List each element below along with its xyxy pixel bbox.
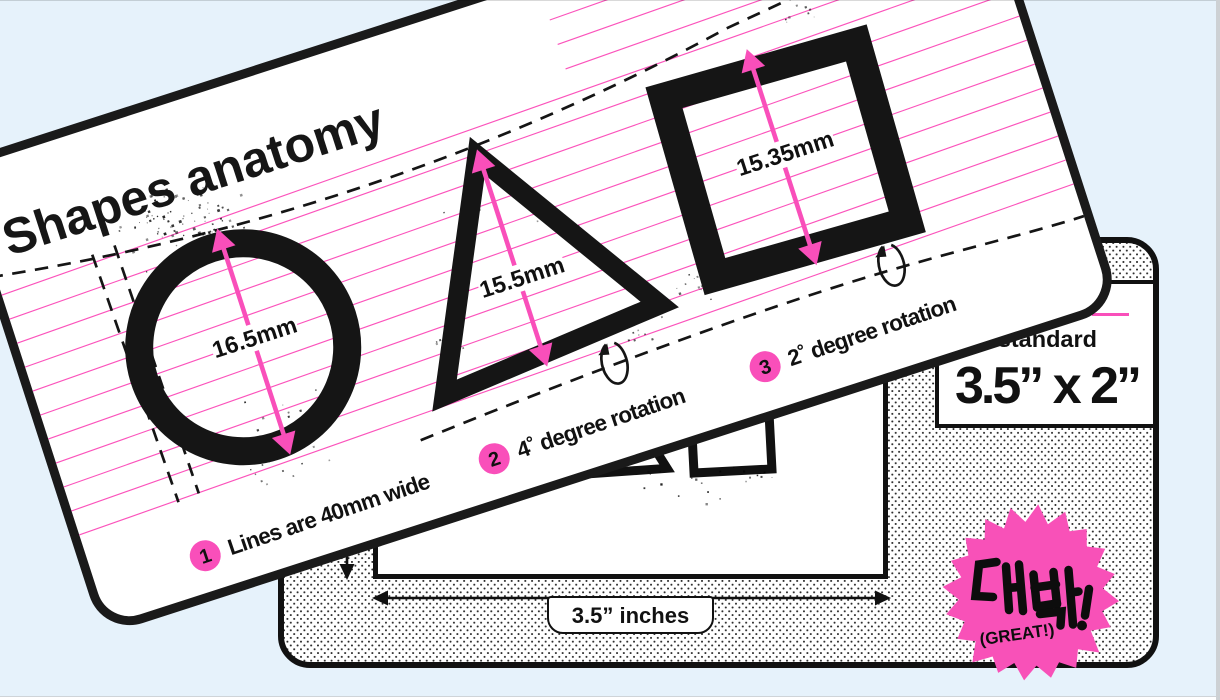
svg-text:2˚ degree rotation: 2˚ degree rotation — [784, 291, 958, 371]
svg-text:4˚ degree rotation: 4˚ degree rotation — [513, 383, 687, 463]
svg-text:15.5mm: 15.5mm — [476, 252, 567, 304]
svg-text:16.5mm: 16.5mm — [209, 312, 300, 364]
